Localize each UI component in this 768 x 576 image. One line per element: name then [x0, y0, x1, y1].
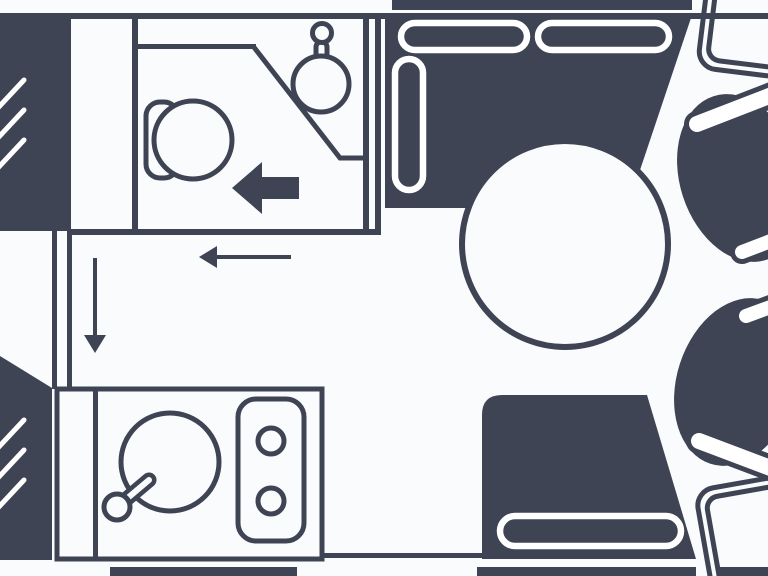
two-burner-hob	[238, 399, 304, 541]
floorplan-svg	[0, 0, 768, 576]
burner-icon	[258, 488, 284, 514]
thin-down-arrow-icon	[84, 258, 106, 353]
wardrobe-block	[0, 13, 71, 231]
swivel-chair-upper	[656, 78, 768, 279]
basin-tap-knob-icon	[313, 24, 332, 43]
thin-left-arrow-icon	[199, 246, 291, 268]
toilet	[146, 101, 232, 179]
burner-icon	[258, 428, 284, 454]
round-table	[462, 141, 668, 347]
swivel-chair-lower	[653, 282, 768, 483]
bottom-wall-left	[110, 567, 297, 576]
top-wall	[0, 13, 768, 19]
top-rail-bar	[392, 0, 692, 10]
cab-seat-top-corner	[697, 0, 768, 82]
floorplan-canvas	[0, 0, 768, 576]
cab-seat-bottom-corner	[695, 470, 768, 576]
bottom-wall-mid	[477, 567, 696, 576]
corridor-arrows	[84, 246, 291, 353]
bottom-sill-line	[322, 553, 482, 558]
toilet-bowl	[154, 101, 232, 179]
kitchen-unit	[57, 389, 322, 559]
bottom-bench-seat	[482, 395, 696, 559]
corridor-partition	[52, 231, 72, 389]
rear-block	[0, 356, 52, 560]
kitchen-divider	[93, 389, 98, 559]
basin-bowl	[293, 56, 349, 112]
washroom	[71, 19, 381, 235]
corner-basin	[293, 24, 349, 113]
thick-left-arrow-icon	[232, 162, 299, 214]
bottom-wall-right	[717, 567, 768, 576]
